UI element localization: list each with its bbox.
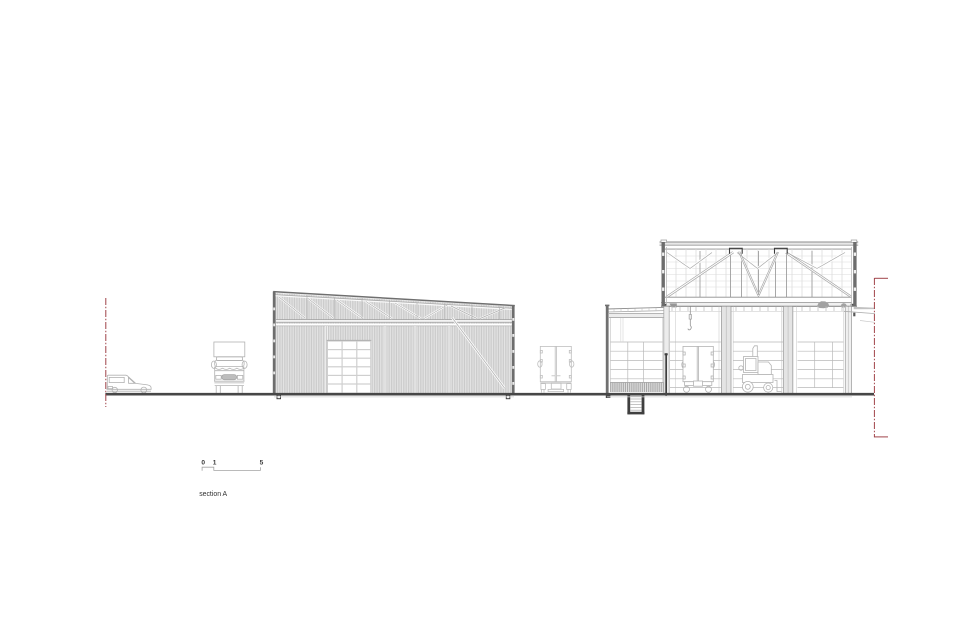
svg-text:section A: section A (199, 491, 227, 498)
svg-text:1: 1 (213, 459, 217, 466)
svg-text:0: 0 (201, 459, 205, 466)
svg-text:5: 5 (260, 459, 264, 466)
